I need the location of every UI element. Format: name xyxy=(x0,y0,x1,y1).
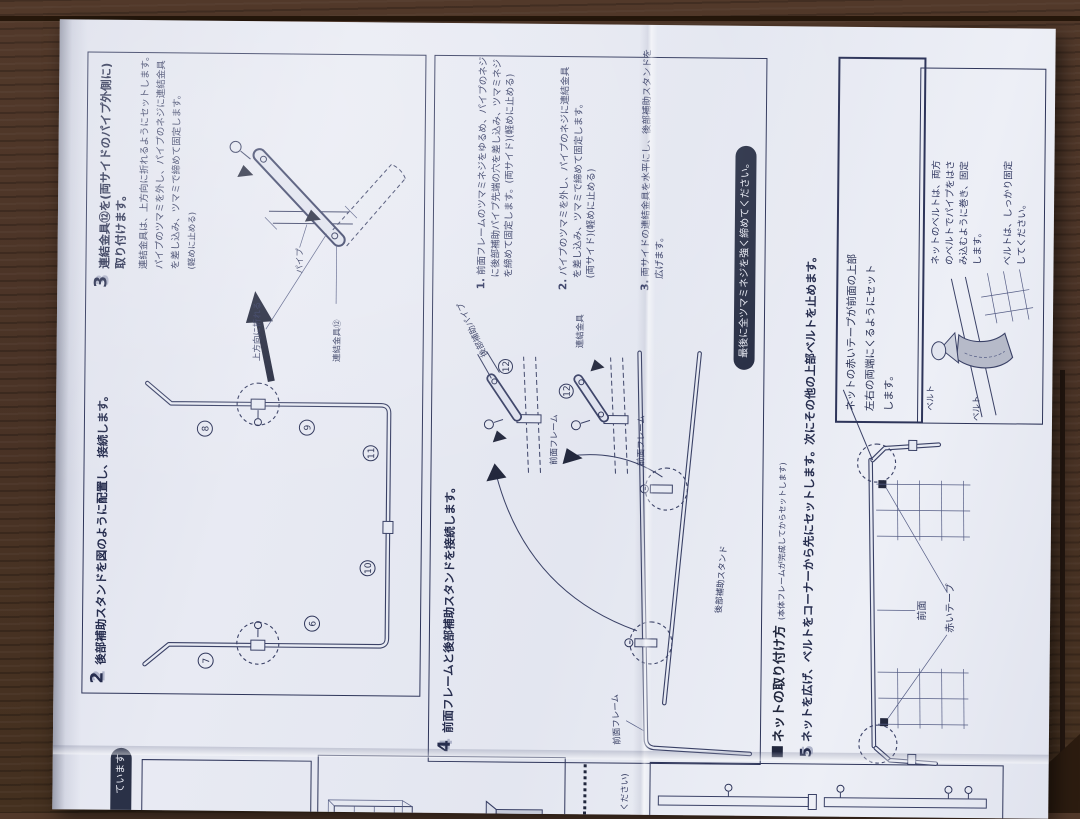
front-frame-label-inset1: 前面フレーム xyxy=(548,414,560,465)
small-arrow-icon xyxy=(237,165,253,177)
joint-knob-icon xyxy=(252,410,263,637)
red-tape-note-box: ネットの赤いテープが前面の上部 左右の両端にくるようにセット します。 xyxy=(835,57,927,424)
parts-pill-text: ています xyxy=(115,754,126,794)
instruction-document: ています 1枚 ください) xyxy=(55,22,1052,814)
item3-line2: 広げます。 xyxy=(654,232,666,291)
belt-line1: ネットのベルトは、両方 xyxy=(929,160,944,265)
final-tighten-note-pill: 最後に全ツマミネジを強く締めてください。 xyxy=(733,146,756,370)
step3-title-line2: 取り付けます。 xyxy=(112,189,129,269)
edge-panel-box-2: 1枚 xyxy=(317,755,566,819)
part-number-12: 12 xyxy=(498,359,512,373)
net-grid-small xyxy=(981,269,1034,323)
item1-number: 1. xyxy=(475,278,487,289)
svg-text:6: 6 xyxy=(308,621,318,627)
belt2-line1: ベルトは、しっかり固定 xyxy=(1001,161,1016,266)
pole-bag-drawing-icon xyxy=(482,797,549,818)
step2-number: 2 xyxy=(87,672,107,684)
item1-line2: に後部補助パイプ先端の穴を差し込み、ツマミネジ xyxy=(490,59,503,290)
instruction-sheet: ています 1枚 ください) xyxy=(52,19,1056,819)
fold-note-label: 上方向に折れる xyxy=(252,302,264,362)
belt-detail-box: ベルト ベルト ネットのベルトは、両方 のベルトでパイプをはさ み込むように巻き… xyxy=(917,68,1046,425)
step5-title: ネットを広げ、ベルトをコーナーから先にセットします。次にその他の上部ベルトを止め… xyxy=(800,251,819,742)
step5-row: 5 ネットを広げ、ベルトをコーナーから先にセットします。次にその他の上部ベルトを… xyxy=(796,251,820,758)
parts-list-header-pill: ています xyxy=(110,748,132,819)
edge-panel-box-1 xyxy=(141,759,312,819)
red-tape-mark-left xyxy=(880,718,888,726)
step3-number: 3 xyxy=(91,276,111,288)
step2-title: 後部補助スタンドを図のように配置し、接続します。 xyxy=(93,390,112,665)
front-frame-label: 前面フレーム xyxy=(610,694,623,745)
svg-text:8: 8 xyxy=(201,425,211,431)
net-cage-drawing-icon xyxy=(326,796,426,819)
note-line2: 左右の両端にくるようにセット xyxy=(861,69,883,411)
net-attach-heading-row: ネットの取り付け方 (本体フレームが完成してからセットします) xyxy=(768,462,790,757)
svg-text:9: 9 xyxy=(303,424,313,430)
step2-frame-diagram: 7 6 8 9 10 11 xyxy=(128,349,423,697)
net-attach-heading: ネットの取り付け方 xyxy=(772,625,788,742)
belt-text-1: ネットのベルトは、両方 のベルトでパイプをはさ み込むように巻き、固定 します。 xyxy=(929,160,986,265)
step3-body: 連結金具は、上方向に折れるようにセットします。 パイプのツマミを外し、パイプのネ… xyxy=(136,51,202,269)
belt-line4: します。 xyxy=(971,160,986,265)
edge-note-fragment: ください) xyxy=(618,773,630,810)
step4-item-3: 3. 両サイドの連結金具を水平にし、後部補助スタンドを 広げます。 xyxy=(639,48,668,291)
part-number-11: 11 xyxy=(363,446,378,461)
thumb-screw-icon xyxy=(230,141,254,177)
step4-item-1: 1. 前面フレームのツマミネジをゆるめ、パイプのネジ に後部補助パイプ先端の穴を… xyxy=(475,57,518,290)
bracket-label: 連結金具⑫ xyxy=(332,319,343,362)
net-corner-diagram: 前面 赤いテープ xyxy=(828,433,1046,770)
rear-stand-label: 後部補助スタンド xyxy=(713,545,729,614)
belt-line2: のベルトでパイプをはさ xyxy=(943,160,958,265)
belt-wrap xyxy=(957,333,1013,368)
step5-number: 5 xyxy=(797,747,815,758)
fold-mark-dotted-line xyxy=(583,764,586,814)
item3-line1: 両サイドの連結金具を水平にし、後部補助スタンドを xyxy=(640,48,653,276)
item1-line1: 前面フレームのツマミネジをゆるめ、パイプのネジ xyxy=(476,57,489,275)
svg-text:11: 11 xyxy=(367,447,377,459)
edge-panel-box-3 xyxy=(649,762,1004,819)
step3-title-line1: 連結金具⑫を(両サイドのパイプ外側に) xyxy=(96,63,114,269)
part-number-10: 10 xyxy=(360,561,375,576)
part-number-8: 8 xyxy=(197,421,212,436)
step4-item-2: 2. パイプのツマミを外し、パイプのネジに連結金具 を差し込み、ツマミで締めて固… xyxy=(557,67,600,291)
note-line3: します。 xyxy=(880,69,902,411)
item2-number: 2. xyxy=(557,279,569,290)
net-attach-heading-note: (本体フレームが完成してからセットします) xyxy=(777,462,788,620)
front-frame-label-inset2: 前面フレーム xyxy=(635,415,647,466)
svg-text:12: 12 xyxy=(502,361,512,373)
item2-line3: (両サイド)(軽めに止める) xyxy=(585,168,597,290)
item3-number: 3. xyxy=(639,280,651,291)
svg-text:10: 10 xyxy=(364,562,374,574)
bracket-folded-ghost xyxy=(333,164,406,247)
wood-plank-gap-right xyxy=(1060,370,1065,813)
bracket-drawing xyxy=(259,155,340,240)
front-label: 前面 xyxy=(915,600,928,620)
step4-number: 4 xyxy=(435,740,455,752)
item2-line1: パイプのツマミを外し、パイプのネジに連結金具 xyxy=(558,67,571,276)
part-number-7: 7 xyxy=(198,653,213,668)
belt-text-2: ベルトは、しっかり固定 してください。 xyxy=(1001,161,1030,266)
belt-label-2: ベルト xyxy=(970,395,982,421)
belt-line3: み込むように巻き、固定 xyxy=(957,160,972,265)
belt2-line2: してください。 xyxy=(1015,161,1030,266)
small-arrow-icon xyxy=(590,359,604,371)
item1-line3: を締めて固定します。(両サイド)(軽めに止める) xyxy=(503,74,516,290)
step3-body-line4: (軽めに止める) xyxy=(184,52,202,270)
part-number-9: 9 xyxy=(299,420,314,435)
step4-title: 前面フレームと後部補助スタンドを接続します。 xyxy=(440,481,458,733)
svg-text:7: 7 xyxy=(202,658,212,664)
step3-bracket-diagram: パイプ 上方向に折れる 連結金具⑫ xyxy=(201,59,424,371)
belt-label-1: ベルト xyxy=(924,385,936,411)
svg-text:12: 12 xyxy=(563,385,573,397)
part-number-6: 6 xyxy=(304,616,319,631)
bracket-label-inset2: 連結金具 xyxy=(574,314,586,348)
small-arrow-icon xyxy=(493,430,507,442)
black-square-icon xyxy=(772,746,783,757)
final-note-text: 最後に全ツマミネジを強く締めてください。 xyxy=(739,158,752,358)
item2-line2: を差し込み、ツマミで締めて固定します。 xyxy=(572,99,585,291)
